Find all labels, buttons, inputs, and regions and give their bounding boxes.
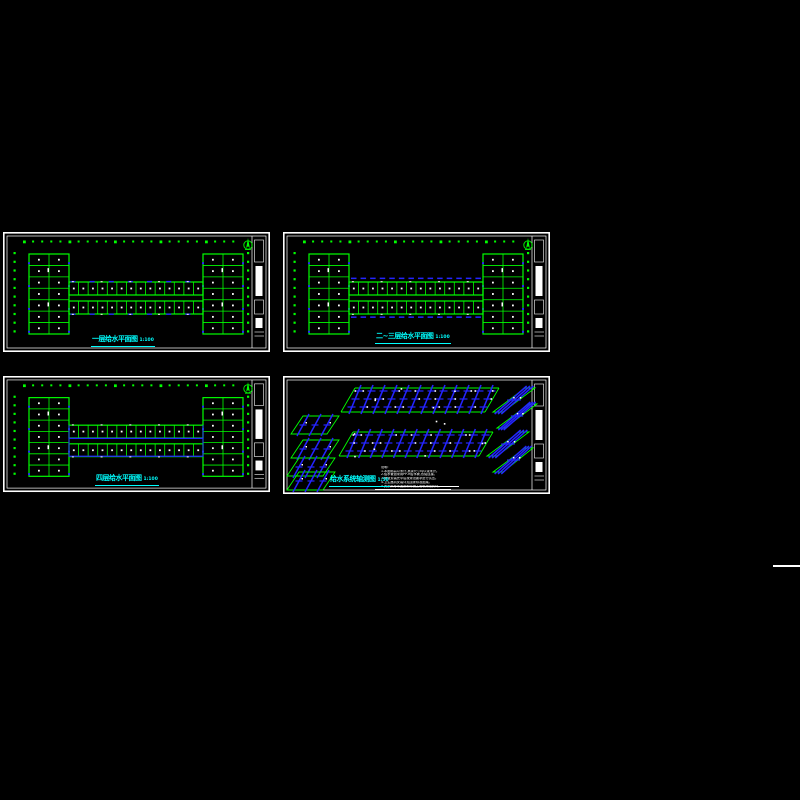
- drawing-title: 四层给水平面图1:100: [95, 474, 159, 486]
- title-scale: 1:50: [378, 478, 389, 483]
- floor-plan: [28, 254, 244, 334]
- plan-drawing-surface: [3, 232, 270, 352]
- floor-plan: [308, 254, 524, 334]
- title-text: 四层给水平面图: [96, 474, 142, 482]
- floor-plan: [28, 398, 244, 477]
- north-arrow-icon: [524, 238, 532, 250]
- title-scale: 1:100: [435, 335, 449, 340]
- title-scale: 1:100: [144, 477, 158, 482]
- drawing-title: 给水系统轴测图1:50: [329, 475, 390, 487]
- title-text: 一层给水平面图: [92, 335, 138, 343]
- drawing-water-supply-axonometric: 说明:1.本图标高以米计,其余尺寸均以毫米计。2.给水管道采用PP-R给水管,热…: [283, 376, 550, 494]
- notes-underline: [375, 489, 451, 490]
- title-text: 给水系统轴测图: [330, 475, 376, 483]
- drawing-title: 一层给水平面图1:100: [91, 335, 155, 347]
- title-block-strip: [532, 236, 544, 348]
- title-block-strip: [252, 236, 264, 348]
- notes-block: 说明:1.本图标高以米计,其余尺寸均以毫米计。2.给水管道采用PP-R给水管,热…: [381, 466, 493, 488]
- title-text: 二~三层给水平面图: [376, 332, 433, 340]
- north-arrow-icon: [244, 382, 252, 393]
- drawing-fourth-floor-plan: 四层给水平面图1:100: [3, 376, 270, 494]
- title-block-strip: [252, 380, 264, 488]
- title-block-strip: [532, 380, 544, 490]
- drawing-second-third-floor-plan: 二~三层给水平面图1:100: [283, 232, 550, 352]
- cad-sheet-canvas: 一层给水平面图1:100 二~三层给水平面图1:100 四层给水平面图1:100…: [0, 0, 800, 800]
- north-arrow-icon: [244, 238, 252, 250]
- stray-line: [773, 565, 800, 567]
- drawing-title: 二~三层给水平面图1:100: [375, 332, 451, 344]
- drawing-first-floor-plan: 一层给水平面图1:100: [3, 232, 270, 352]
- title-scale: 1:100: [140, 338, 154, 343]
